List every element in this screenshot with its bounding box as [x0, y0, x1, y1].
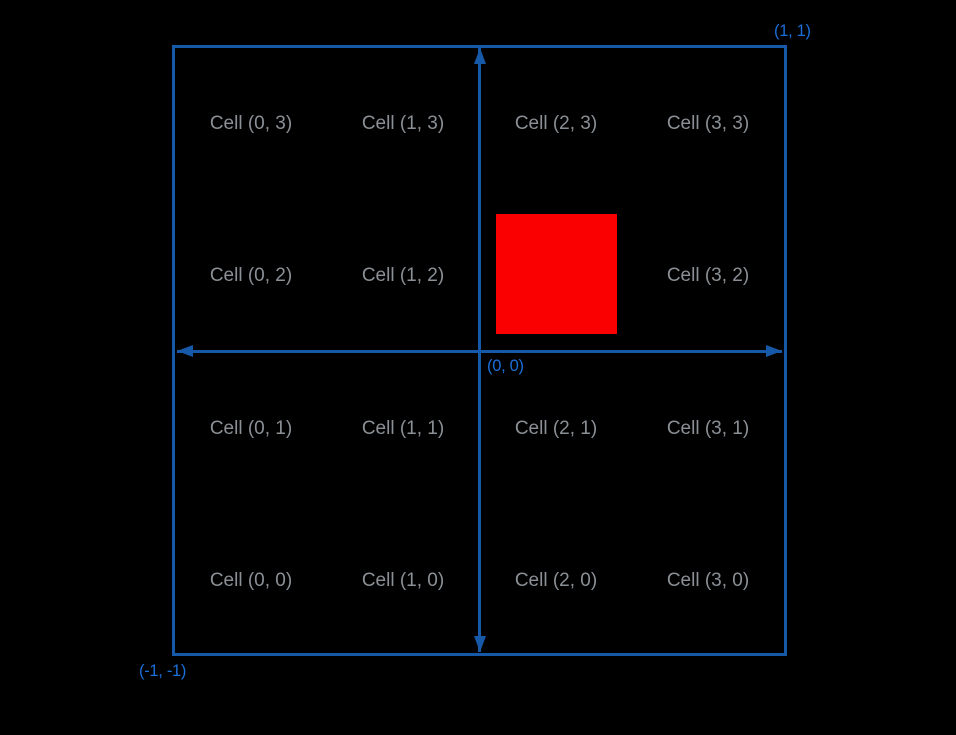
cell-label-3-1: Cell (3, 1) [667, 418, 749, 440]
cell-label-1-3: Cell (1, 3) [362, 113, 444, 135]
cell-label-1-0: Cell (1, 0) [362, 570, 444, 592]
x-axis-line [177, 350, 782, 353]
cell-label-2-1: Cell (2, 1) [515, 418, 597, 440]
coord-label-bottom-left: (-1, -1) [139, 662, 186, 681]
coord-label-origin: (0, 0) [487, 357, 524, 376]
coord-label-top-right: (1, 1) [774, 22, 811, 41]
cell-label-0-0: Cell (0, 0) [210, 570, 292, 592]
cell-label-3-2: Cell (3, 2) [667, 265, 749, 287]
cell-label-0-2: Cell (0, 2) [210, 265, 292, 287]
y-axis-arrow-up-icon [474, 48, 486, 64]
cell-label-0-3: Cell (0, 3) [210, 113, 292, 135]
cell-label-3-0: Cell (3, 0) [667, 570, 749, 592]
coordinate-grid-diagram: (1, 1) (0, 0) (-1, -1) Cell (0, 3)Cell (… [0, 0, 956, 735]
highlighted-cell-square [496, 214, 617, 334]
cell-label-0-1: Cell (0, 1) [210, 418, 292, 440]
cell-label-2-0: Cell (2, 0) [515, 570, 597, 592]
y-axis-arrow-down-icon [474, 636, 486, 652]
cell-label-3-3: Cell (3, 3) [667, 113, 749, 135]
cell-label-1-1: Cell (1, 1) [362, 418, 444, 440]
cell-label-1-2: Cell (1, 2) [362, 265, 444, 287]
x-axis-arrow-left-icon [177, 345, 193, 357]
cell-label-2-3: Cell (2, 3) [515, 113, 597, 135]
x-axis-arrow-right-icon [766, 345, 782, 357]
